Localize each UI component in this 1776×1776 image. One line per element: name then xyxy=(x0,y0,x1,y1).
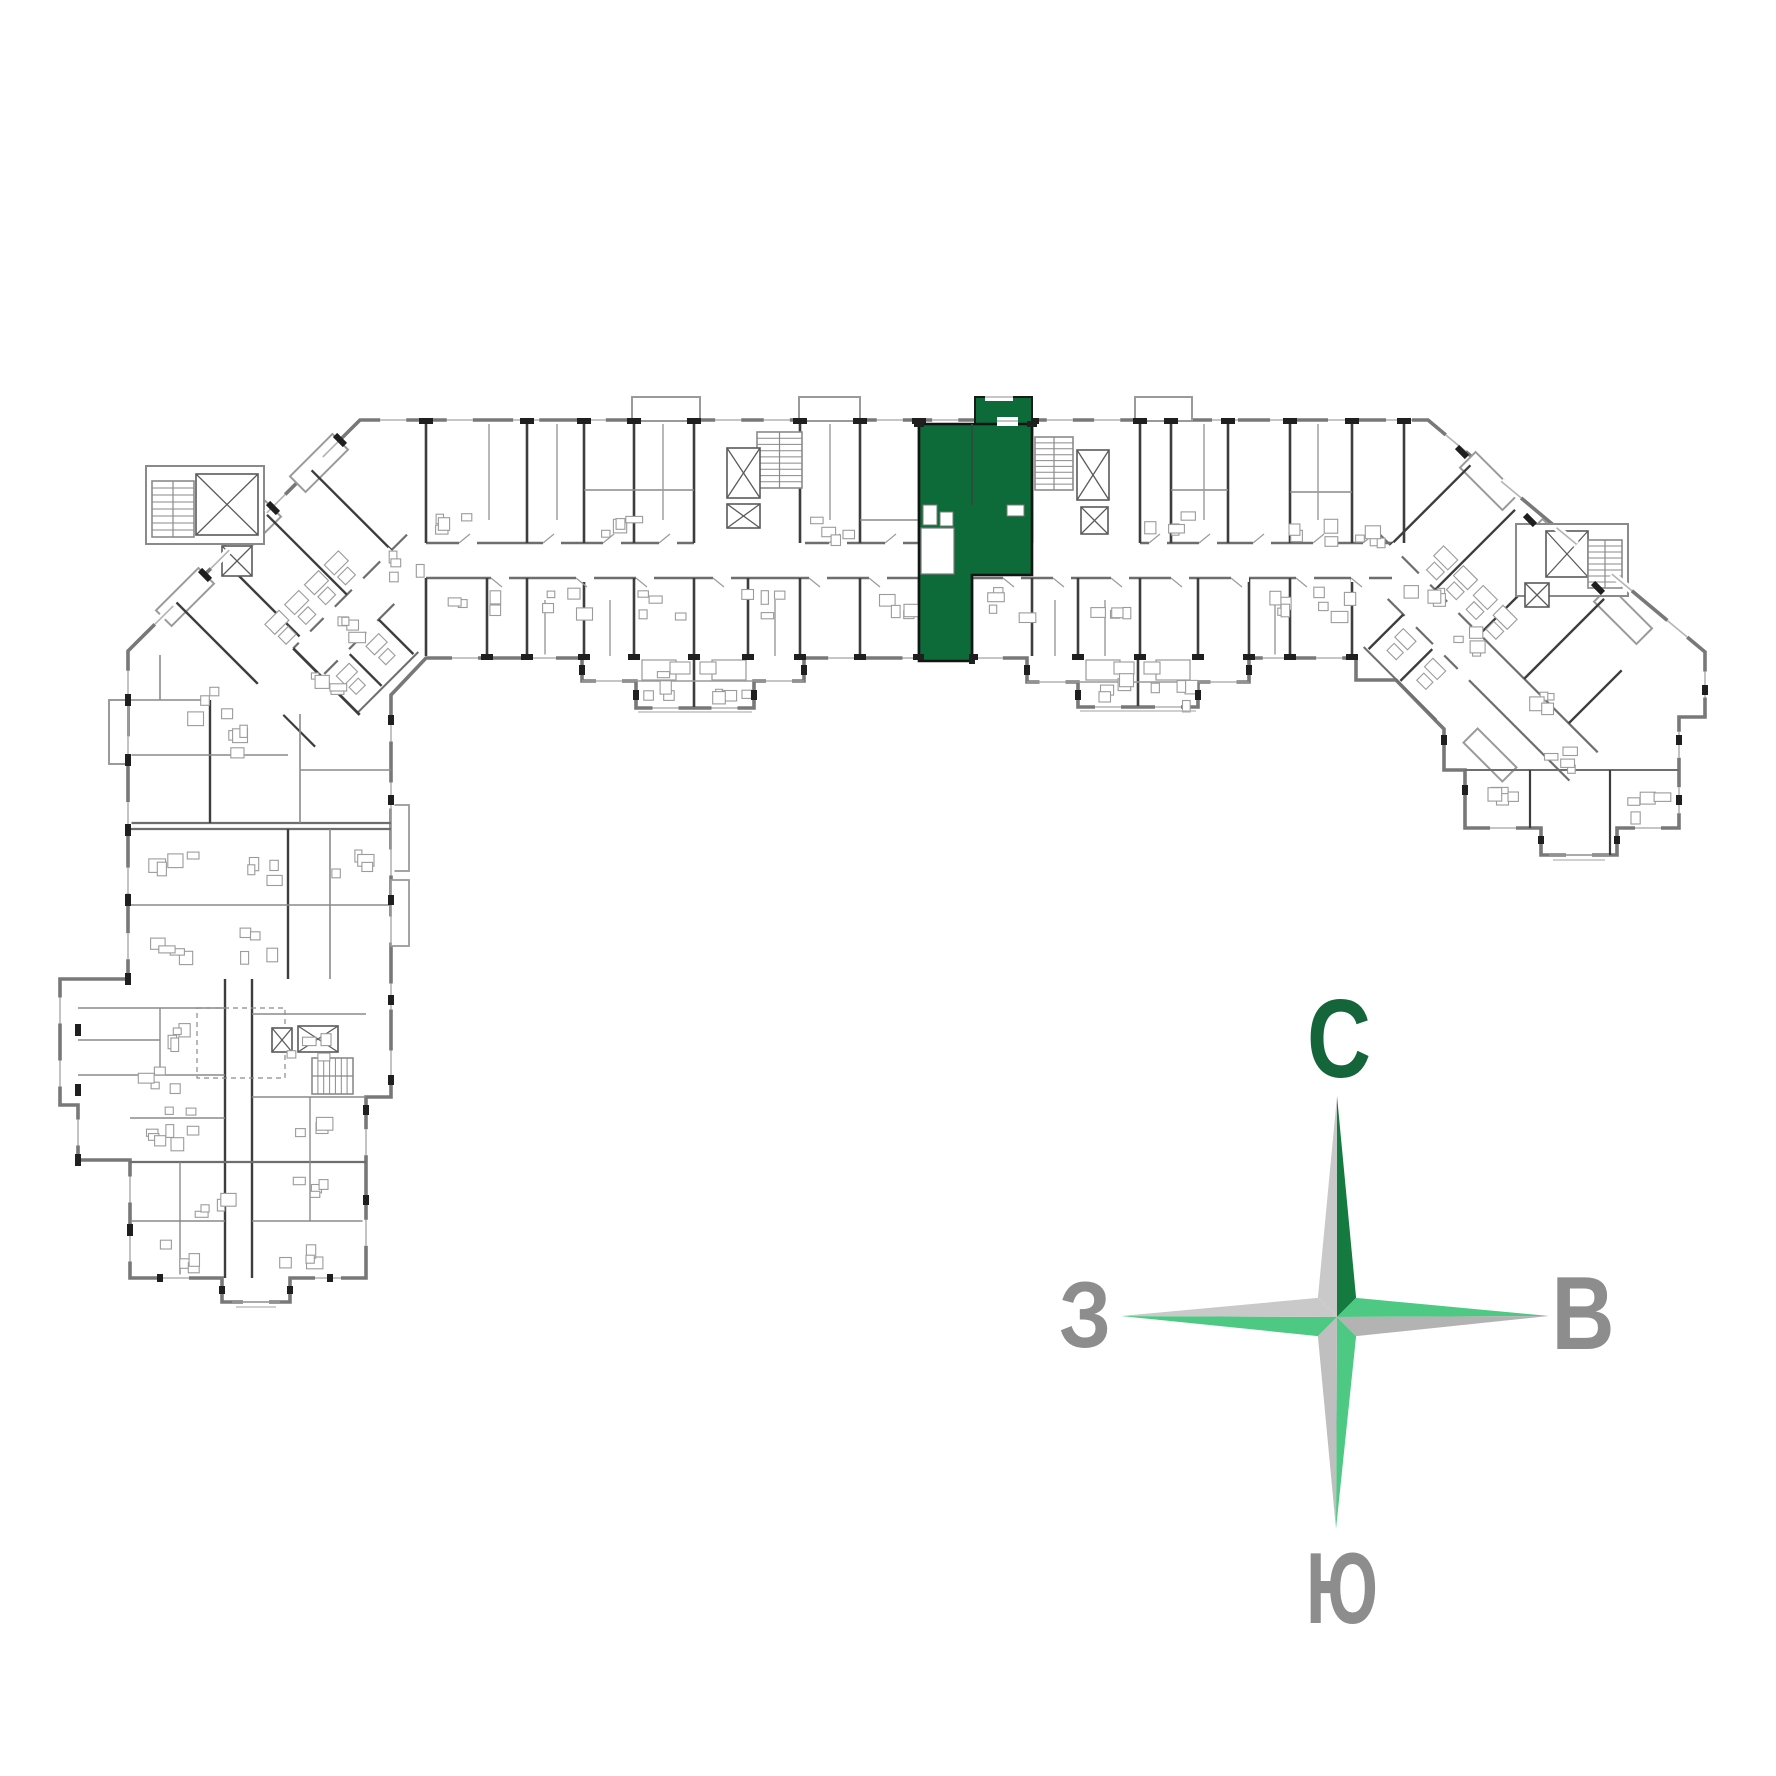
svg-text:Ю: Ю xyxy=(1306,1533,1378,1645)
svg-text:С: С xyxy=(1307,977,1371,1101)
svg-text:В: В xyxy=(1552,1256,1615,1372)
svg-text:З: З xyxy=(1059,1262,1111,1367)
